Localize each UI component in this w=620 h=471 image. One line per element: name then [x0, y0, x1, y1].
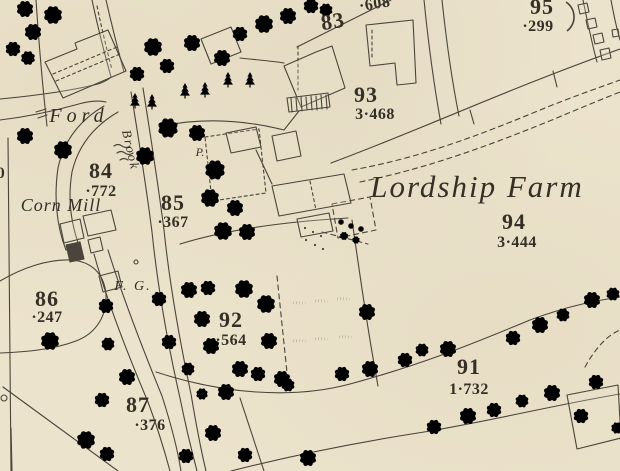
parcel-83-acreage: ·608 [358, 0, 392, 15]
parcel-83-number: 83 [319, 7, 347, 35]
parcel-92-number: 92 [219, 307, 243, 332]
conifers-layer [130, 72, 255, 110]
parcel-91-number: 91 [457, 354, 481, 379]
parcel-85-number: 85 [161, 190, 185, 215]
parcel-95-acreage: ·299 [522, 18, 553, 35]
mill-building-solid [66, 242, 84, 262]
farm-north-fence [162, 111, 299, 130]
parcel-95-number: 95 [530, 0, 554, 19]
farmhouse [226, 127, 261, 153]
map-canvas: 83 ·608 93 3·468 95 ·299 84 ·772 85 ·367… [0, 0, 620, 471]
parcel-87-number: 87 [126, 392, 150, 417]
label-brook: Brook [119, 128, 143, 172]
parcel-94-acreage: 3·444 [497, 234, 537, 251]
label-ford: Ford [48, 105, 108, 127]
parcel-91-acreage: 1·732 [449, 381, 489, 398]
glasshouse [287, 93, 330, 112]
hedgerow-lower [231, 394, 620, 471]
brace-95 [566, 2, 574, 31]
parcel-87-acreage: ·376 [134, 417, 165, 434]
parcel-92-acreage: ·564 [215, 332, 246, 349]
parcel-93-acreage: 3·468 [355, 106, 395, 123]
ordnance-survey-map: 83 ·608 93 3·468 95 ·299 84 ·772 85 ·367… [0, 0, 620, 471]
label-pump: P. [195, 145, 205, 159]
edge-partial-number: 0 [0, 165, 5, 182]
boundary-94-west [352, 220, 378, 386]
cart-track [352, 80, 620, 170]
building-northeast [366, 20, 416, 85]
label-field-gate: F. G. [113, 279, 151, 294]
lordship-farm-barn [272, 174, 351, 216]
parcel-94-number: 94 [502, 209, 526, 234]
barn-northwest [45, 30, 126, 98]
rough-pasture-layer [292, 297, 354, 344]
west-boundary-outer [8, 138, 11, 471]
label-lordship-farm: Lordship Farm [369, 169, 583, 204]
parcel-86-acreage: ·247 [31, 309, 62, 326]
parcel-86-number: 86 [35, 286, 59, 311]
label-corn-mill: Corn Mill [21, 195, 102, 215]
parcel-93-number: 93 [354, 82, 378, 107]
parcel-84-number: 84 [89, 158, 113, 183]
parcel-85-acreage: ·367 [157, 214, 188, 231]
